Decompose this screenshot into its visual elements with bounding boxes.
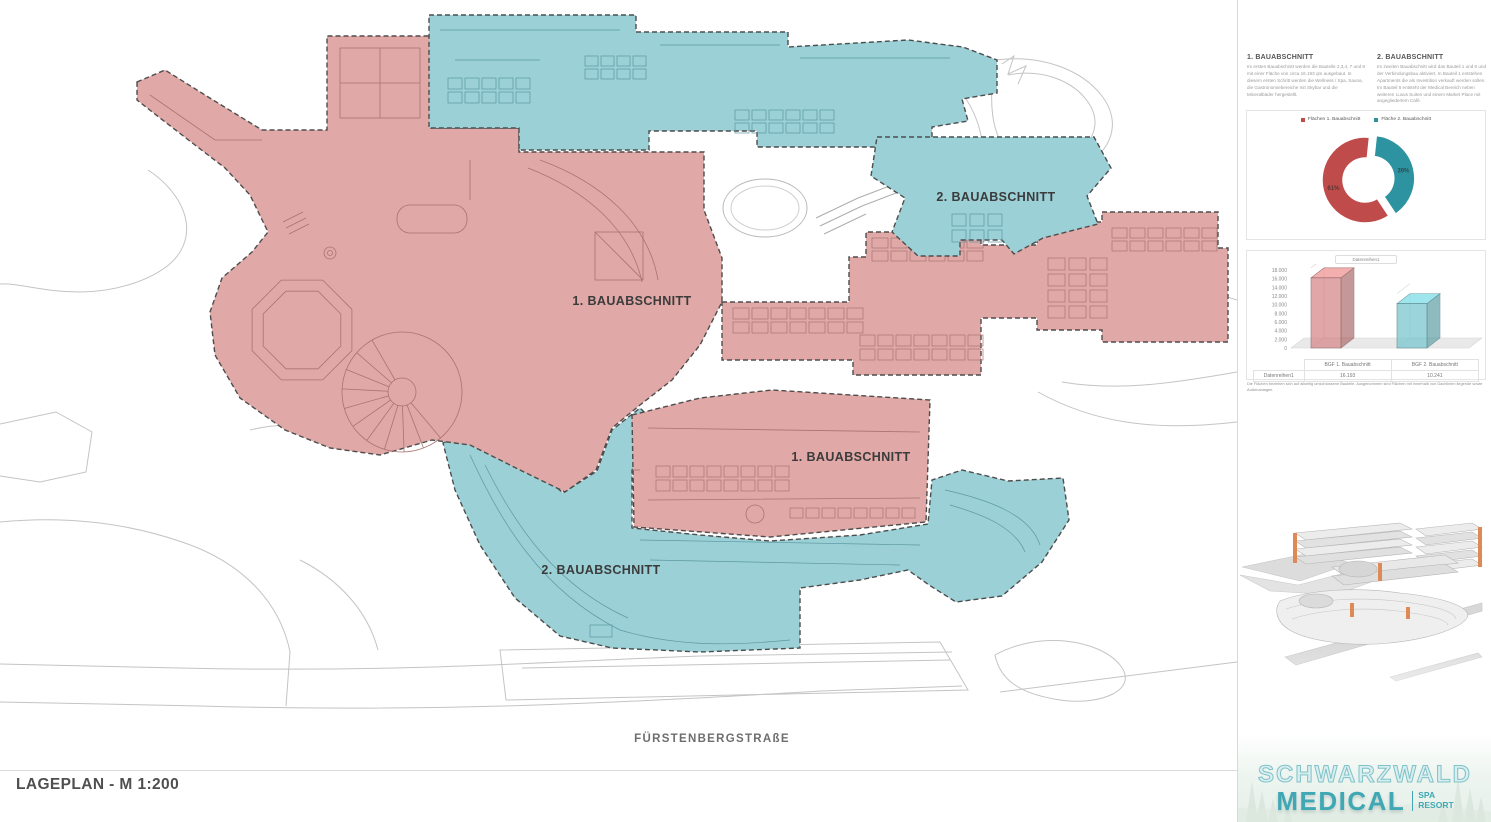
logo-tag-resort: RESORT xyxy=(1418,801,1453,811)
table-value-1: 16.193 xyxy=(1304,371,1391,382)
site-plan: 1. BAUABSCHNITT 2. BAUABSCHNITT 1. BAUAB… xyxy=(0,0,1237,770)
section-phase1: 1. BAUABSCHNITT Im ersten Bauabschnitt w… xyxy=(1247,54,1365,98)
y-tick-label: 16.000 xyxy=(1272,277,1288,283)
presentation-board: 1. BAUABSCHNITT 2. BAUABSCHNITT 1. BAUAB… xyxy=(0,0,1491,822)
donut-value-label: 39% xyxy=(1397,169,1410,175)
y-tick-label: 14.000 xyxy=(1272,285,1288,291)
bar-side-face xyxy=(1341,268,1354,348)
logo-schwarzwald: SCHWARZWALD xyxy=(1238,762,1491,787)
y-tick-label: 8.000 xyxy=(1274,311,1287,317)
phase1-main-label: 1. BAUABSCHNITT xyxy=(572,294,691,308)
phase2-upper-label: 2. BAUABSCHNITT xyxy=(936,190,1055,204)
title-divider xyxy=(0,770,1237,771)
bar-chart-box: Datenreihen1 02.0004.0006.0008.00010.000… xyxy=(1246,250,1486,380)
logo: SCHWARZWALD MEDICAL SPA RESORT xyxy=(1238,762,1491,814)
y-tick-label: 10.000 xyxy=(1272,303,1288,309)
legend-marker-phase2-icon xyxy=(1374,118,1378,122)
chart-disclaimer: Die Flächen beziehen sich auf allseitig … xyxy=(1247,381,1483,393)
donut-chart-box: Flächen 1. Bauabschnitt Fläche 2. Bauabs… xyxy=(1246,110,1486,240)
street-label: FÜRSTENBERGSTRAßE xyxy=(634,732,790,745)
bar-front-face-1 xyxy=(1311,278,1341,348)
table-series-name: Datenreihen1 xyxy=(1254,371,1305,382)
logo-medical: MEDICAL xyxy=(1276,788,1405,814)
section-phase1-body: Im ersten Bauabschnitt werden die Bautei… xyxy=(1247,64,1365,98)
sidebar: 1. BAUABSCHNITT Im ersten Bauabschnitt w… xyxy=(1237,0,1491,822)
y-tick-label: 2.000 xyxy=(1274,337,1287,343)
site-plan-drawing: 1. BAUABSCHNITT 2. BAUABSCHNITT 1. BAUAB… xyxy=(0,0,1237,770)
table-value-row: Datenreihen1 16.193 10.241 xyxy=(1254,371,1479,382)
section-phase2-body: Im zweiten Bauabschnitt wird das Bauteil… xyxy=(1377,64,1487,105)
page-title: LAGEPLAN - M 1:200 xyxy=(16,776,179,794)
y-tick-label: 12.000 xyxy=(1272,294,1288,300)
y-tick-label: 0 xyxy=(1284,346,1287,352)
donut-value-label: 61% xyxy=(1327,186,1340,192)
bar-chart-data-table: BGF 1. Bauabschnitt BGF 2. Bauabschnitt … xyxy=(1253,359,1479,382)
y-tick-label: 6.000 xyxy=(1274,320,1287,326)
table-value-2: 10.241 xyxy=(1391,371,1478,382)
phase1-lower-label: 1. BAUABSCHNITT xyxy=(791,450,910,464)
table-header-cat1: BGF 1. Bauabschnitt xyxy=(1304,360,1391,371)
donut-chart: 39%61% xyxy=(1247,122,1483,234)
section-phase1-heading: 1. BAUABSCHNITT xyxy=(1247,54,1365,61)
y-tick-label: 4.000 xyxy=(1274,329,1287,335)
section-phase2: 2. BAUABSCHNITT Im zweiten Bauabschnitt … xyxy=(1377,54,1487,105)
table-header-cat2: BGF 2. Bauabschnitt xyxy=(1391,360,1478,371)
phase2-lower-label: 2. BAUABSCHNITT xyxy=(541,563,660,577)
table-header-stub xyxy=(1254,360,1305,371)
table-header-row: BGF 1. Bauabschnitt BGF 2. Bauabschnitt xyxy=(1254,360,1479,371)
resort-3d-render xyxy=(1240,505,1490,685)
section-phase2-heading: 2. BAUABSCHNITT xyxy=(1377,54,1487,61)
legend-marker-phase1-icon xyxy=(1301,118,1305,122)
bar-chart: 02.0004.0006.0008.00010.00012.00014.0001… xyxy=(1247,264,1483,354)
bar-front-face-2 xyxy=(1397,304,1427,348)
logo-tagline: SPA RESORT xyxy=(1412,791,1453,811)
logo-panel: SCHWARZWALD MEDICAL SPA RESORT xyxy=(1238,734,1491,822)
y-tick-label: 18.000 xyxy=(1272,268,1288,274)
bar-chart-legend: Datenreihen1 xyxy=(1335,255,1397,264)
